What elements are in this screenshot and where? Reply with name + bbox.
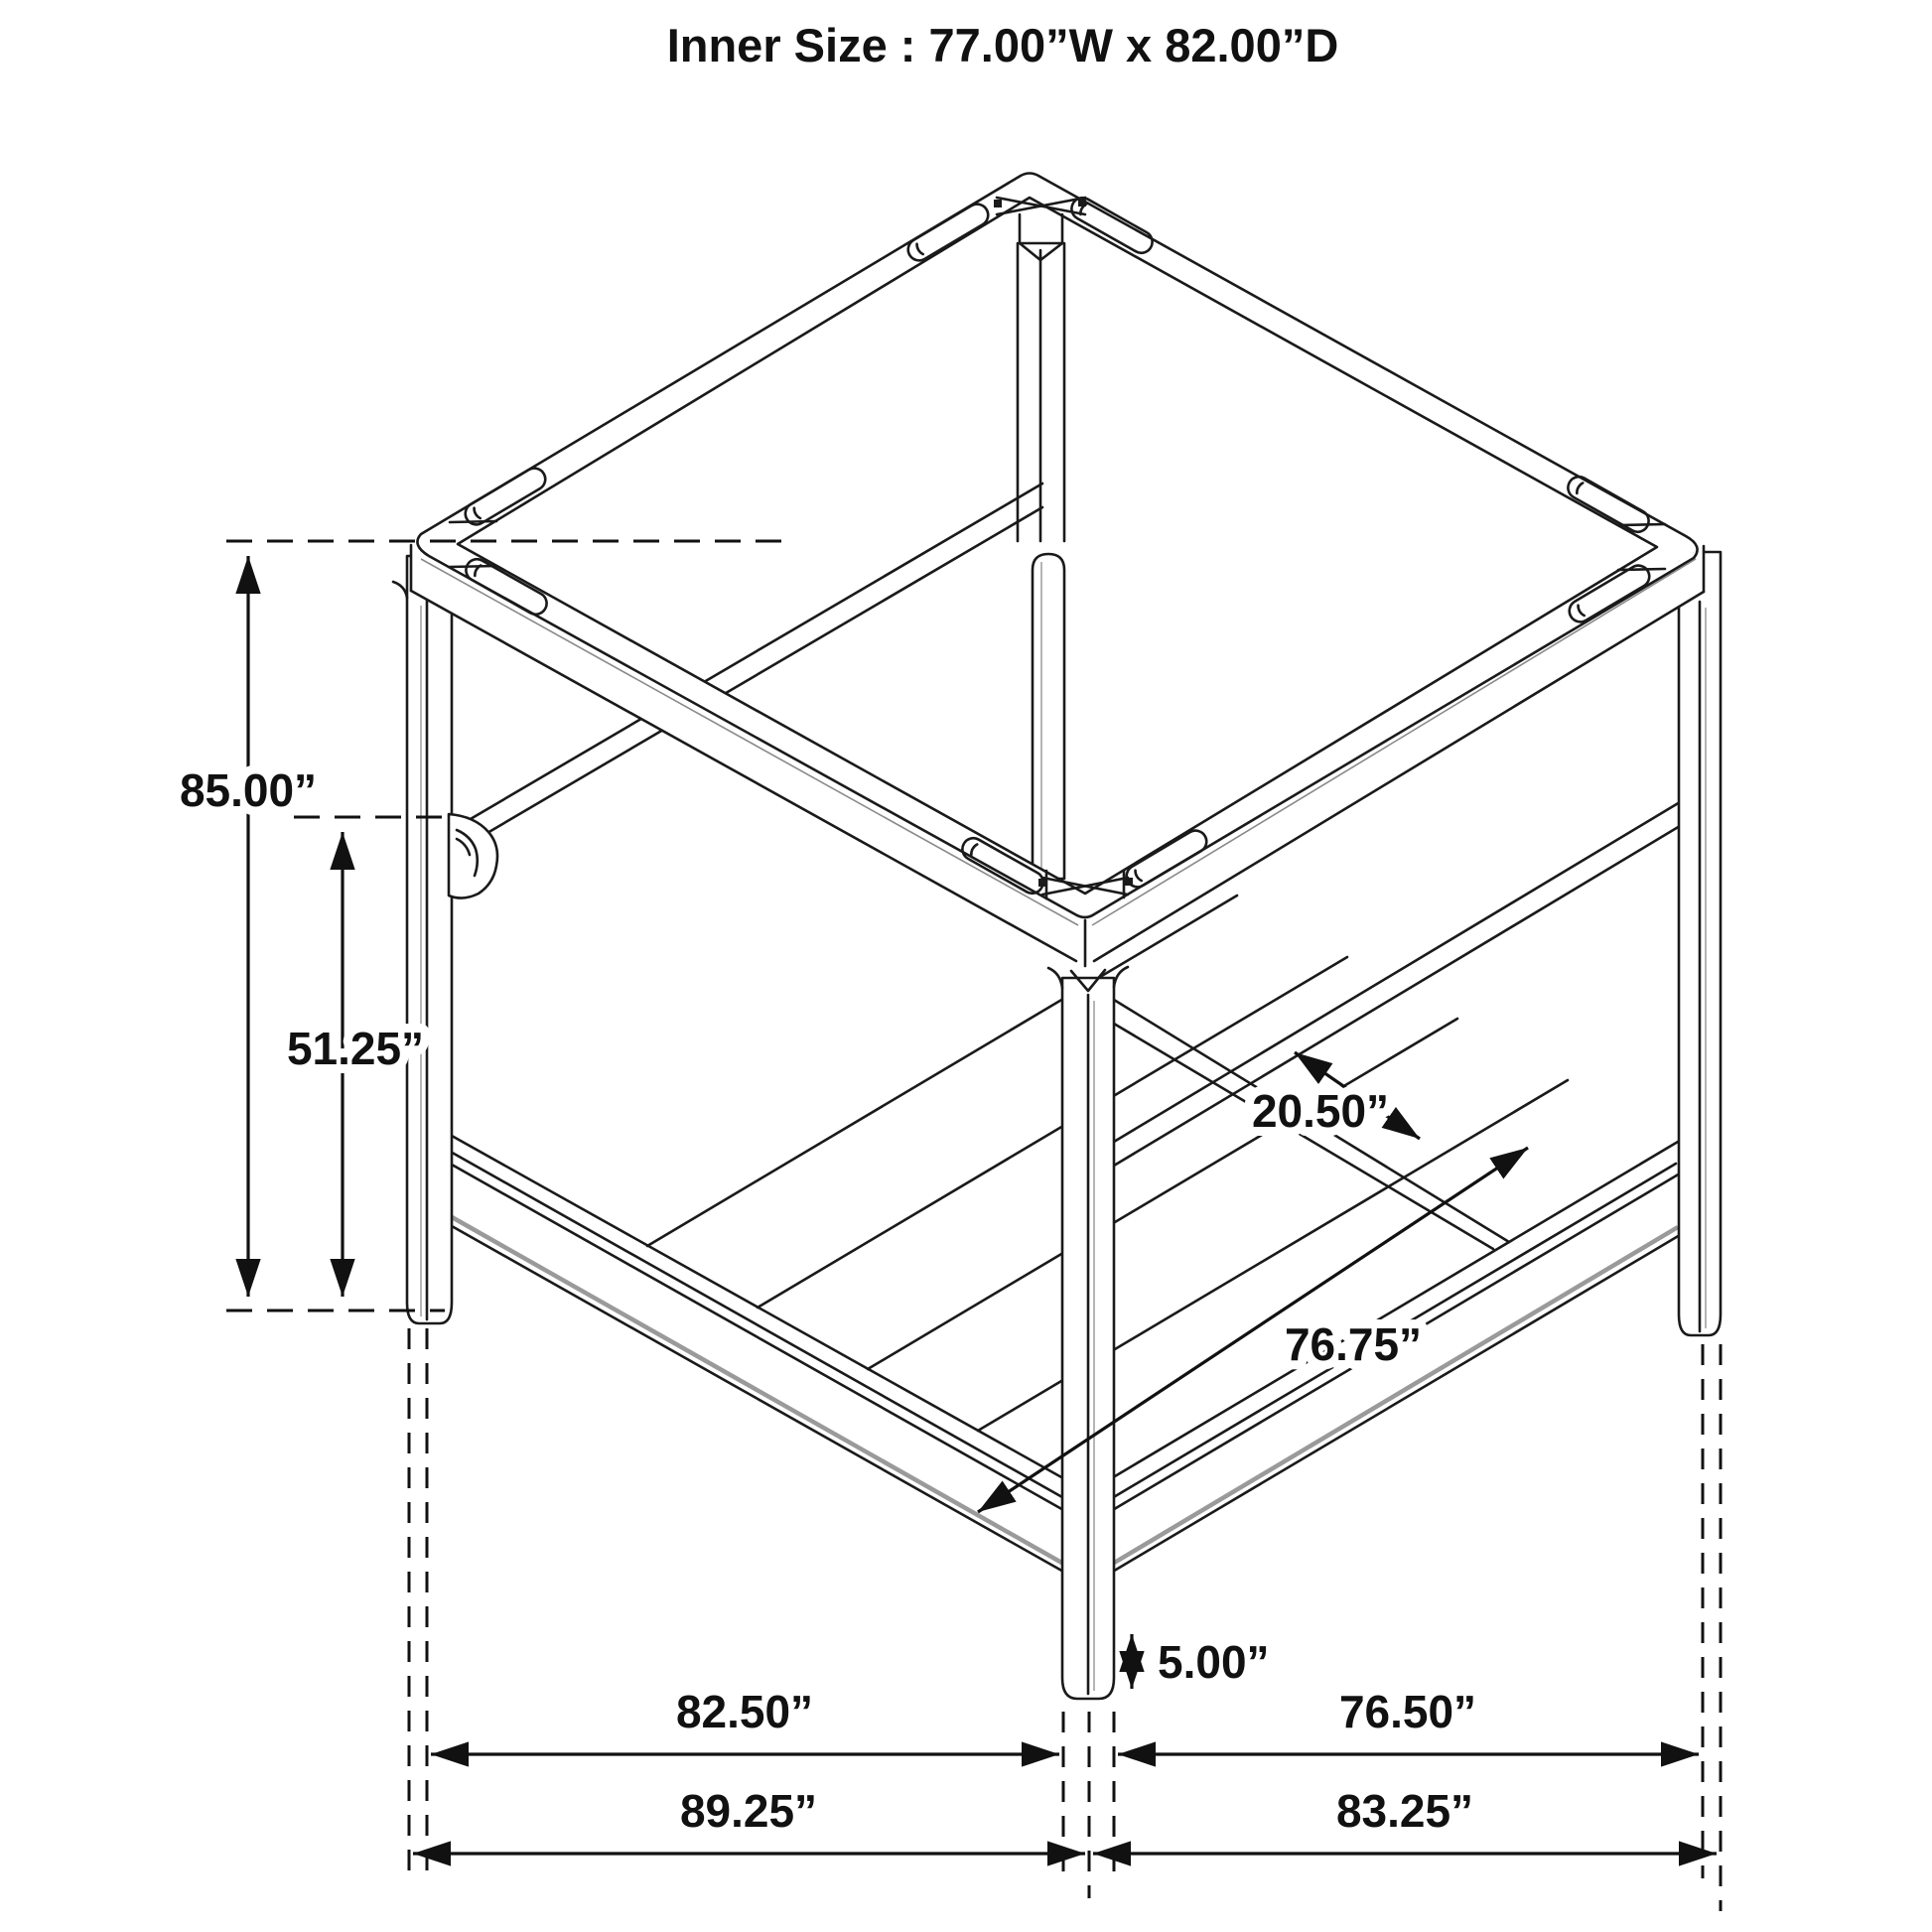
bed-frame-drawing <box>393 171 1721 1699</box>
dim-width-inner-label: 76.50” <box>1339 1686 1476 1737</box>
dim-width-outer-label: 83.25” <box>1336 1785 1473 1837</box>
dim-rail-height-label: 51.25” <box>287 1023 424 1074</box>
post-flare <box>393 582 407 598</box>
slat-seam <box>647 896 1237 1246</box>
slat-seam <box>868 1019 1457 1369</box>
dim-depth-outer-label: 89.25” <box>680 1785 817 1837</box>
dim-floor-clearance-label: 5.00” <box>1158 1636 1270 1688</box>
front-post <box>1048 967 1128 1699</box>
diagram-page: Inner Size : 77.00”W x 82.00”D <box>0 0 1932 1932</box>
post-flare <box>1114 967 1128 987</box>
left-post <box>393 556 452 1323</box>
dim-overall-height-label: 85.00” <box>180 764 317 816</box>
platform-side-rails <box>429 1142 1680 1573</box>
dim-rail-gap-label: 20.50” <box>1252 1085 1389 1137</box>
headboard-hanger-bar <box>1033 554 1064 879</box>
dim-slat-length-label: 76.75” <box>1285 1318 1422 1370</box>
headboard-rail <box>452 483 1042 854</box>
lock-tick <box>994 200 1002 207</box>
dim-depth-inner-label: 82.50” <box>676 1686 813 1737</box>
headboard-hook-bracket <box>449 814 497 898</box>
slat-deck <box>427 896 1678 1492</box>
back-post <box>1018 243 1064 541</box>
post-flare <box>1048 968 1062 988</box>
page-title: Inner Size : 77.00”W x 82.00”D <box>667 19 1339 71</box>
canopy-bed-dimension-diagram: Inner Size : 77.00”W x 82.00”D <box>0 0 1932 1932</box>
